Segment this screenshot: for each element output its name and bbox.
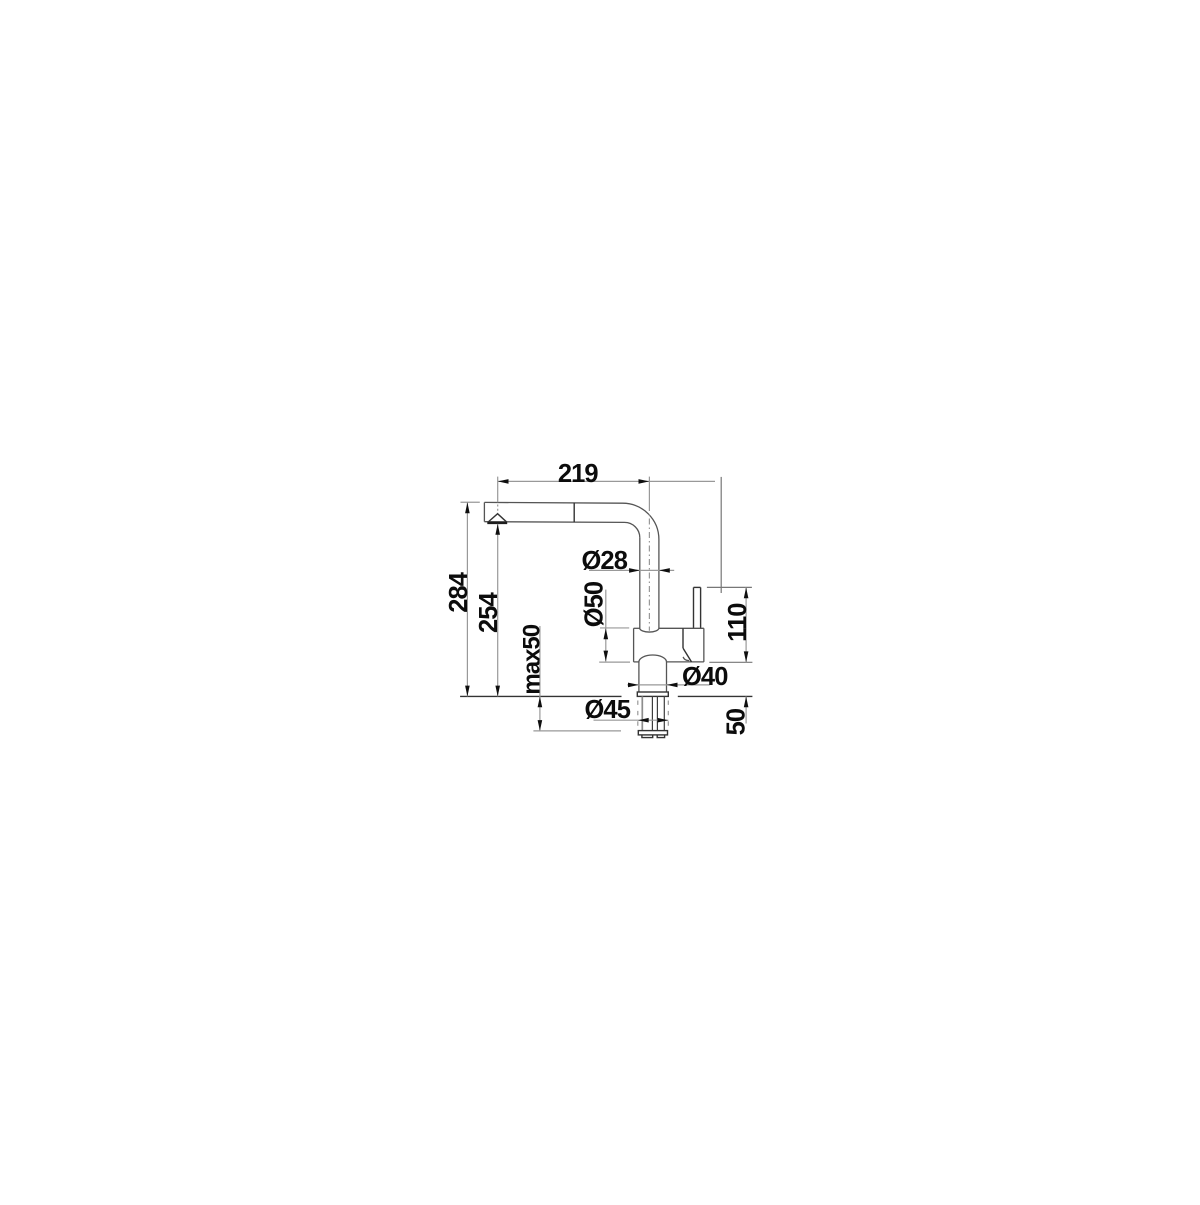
svg-text:50: 50 [723, 708, 751, 735]
svg-text:110: 110 [724, 603, 752, 642]
svg-text:Ø45: Ø45 [585, 696, 631, 724]
svg-text:Ø28: Ø28 [582, 547, 628, 575]
svg-text:254: 254 [475, 591, 503, 633]
svg-text:284: 284 [445, 571, 473, 613]
svg-text:max50: max50 [519, 624, 546, 694]
svg-text:Ø50: Ø50 [580, 581, 608, 627]
svg-text:219: 219 [558, 460, 599, 488]
svg-text:Ø40: Ø40 [682, 663, 728, 691]
